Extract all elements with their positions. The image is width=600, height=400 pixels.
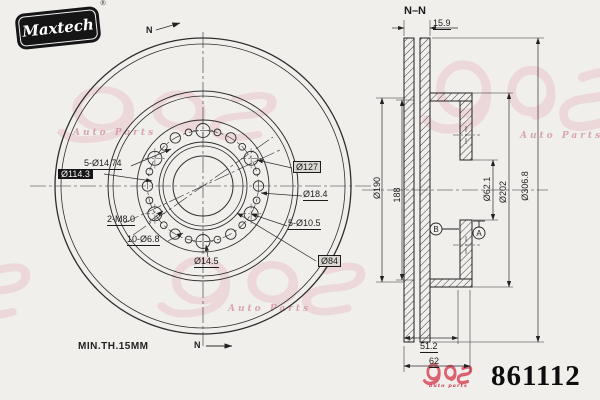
catalog-page: Auto Parts Auto Parts Auto Parts [0, 0, 600, 400]
dim-overall-height: 62 [429, 356, 439, 368]
front-view [30, 23, 376, 346]
footer-logo-subtext: auto parts [429, 383, 468, 389]
section-marker-bottom: N [194, 340, 201, 350]
part-number: 861112 [491, 360, 581, 393]
callout-hat-od: Ø127 [293, 161, 321, 173]
datum-b-label: B [433, 225, 438, 234]
section-marker-top: N [146, 25, 153, 35]
callout-thread-holes: 2-M8.0 [107, 214, 135, 226]
section-title: N–N [404, 5, 426, 17]
maxtech-logo-text: Maxtech [21, 15, 94, 40]
callout-holes-10-5: 5-Ø10.5 [288, 218, 321, 230]
callout-hole-14-5: Ø14.5 [194, 256, 219, 268]
registered-trademark-symbol: ® [100, 0, 106, 7]
callout-pcd: Ø114.3 [58, 169, 93, 179]
callout-hole-18-4: Ø18.4 [303, 189, 328, 201]
dim-hat-depth: 51.2 [420, 341, 438, 353]
maxtech-logo-frame: Maxtech [18, 9, 99, 47]
min-thickness-note: MIN.TH.15MM [78, 341, 149, 352]
dim-bore: Ø62.1 [482, 177, 492, 202]
dim-inner-diameter: Ø190 [372, 177, 382, 199]
callout-holes-6-8: 10-Ø6.8 [127, 234, 160, 246]
datum-a-label: A [476, 229, 482, 238]
callout-register: Ø84 [318, 255, 341, 267]
dim-disc-thickness: 15.9 [433, 18, 451, 30]
dim-outer-diameter: Ø306.8 [520, 171, 530, 201]
dim-vent-diameter: 188 [392, 187, 402, 202]
dim-hat-diameter: Ø202 [498, 181, 508, 203]
technical-drawing: B A [0, 0, 600, 400]
